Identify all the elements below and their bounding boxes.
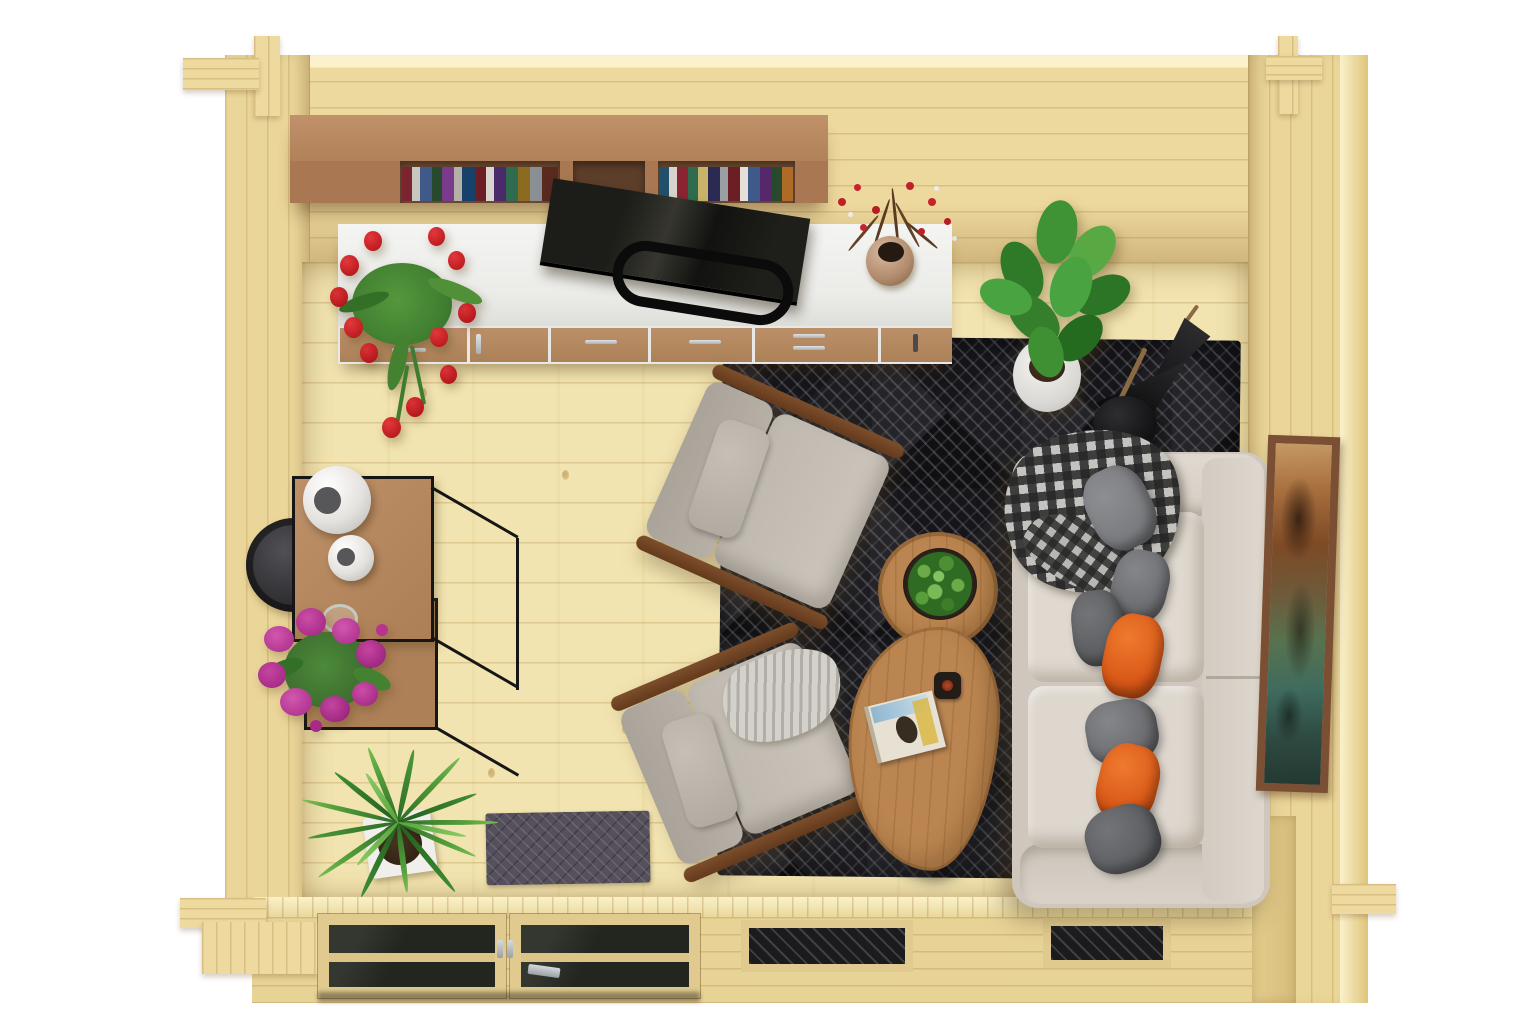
vase-opening — [314, 487, 341, 514]
corner-log-top-right-horizontal — [1266, 56, 1322, 80]
scene-canvas — [0, 0, 1536, 1025]
tulip-plant — [330, 225, 490, 440]
front-window-right — [1043, 918, 1171, 968]
candle — [934, 672, 961, 699]
vase-mouth — [878, 242, 904, 262]
blossom — [952, 236, 957, 241]
picture-frame — [1256, 435, 1340, 793]
window-interior-rug-glimpse — [749, 928, 905, 964]
cabinet-handle — [913, 334, 918, 352]
cabinet-door — [881, 328, 952, 362]
front-window-left — [741, 920, 913, 972]
purple-flower — [296, 608, 326, 636]
books-row — [660, 167, 793, 201]
tulip-stem — [410, 345, 426, 405]
berry — [854, 184, 861, 191]
blossom — [934, 186, 939, 191]
corner-log-top-left-horizontal — [183, 58, 259, 90]
drawer — [551, 328, 648, 362]
tulip-flower — [448, 251, 465, 270]
door-threshold-shadow — [318, 992, 700, 1002]
small-sphere-vase — [328, 535, 374, 581]
tulip-flower — [340, 255, 359, 276]
ficus-plant — [985, 170, 1145, 420]
right-wall-outer-edge — [1340, 55, 1368, 1003]
door-right-panel — [510, 914, 700, 998]
berry — [944, 218, 951, 225]
porch-step — [202, 922, 318, 974]
bookshelf-top-face — [290, 115, 828, 161]
purple-flower — [352, 682, 378, 706]
blossom — [848, 212, 853, 217]
window-interior-rug-glimpse — [1051, 926, 1163, 960]
plant-bowl-greenery — [908, 552, 972, 616]
candle-flame-center — [942, 680, 953, 691]
berry-vase-arrangement — [810, 170, 970, 295]
tulip-flower — [440, 365, 457, 384]
tulip-flower — [430, 327, 448, 347]
door-mid-rail — [329, 953, 495, 962]
drawer — [755, 328, 878, 362]
berry-branch — [904, 221, 938, 250]
door-handle — [507, 940, 513, 958]
shelf-unit-frame-bar — [516, 538, 519, 690]
large-sphere-vase — [303, 466, 371, 534]
corner-log-bottom-right — [1332, 884, 1396, 914]
berry — [860, 224, 867, 231]
tulip-flower — [330, 287, 348, 307]
berry — [872, 206, 880, 214]
vase-opening — [337, 548, 355, 566]
drawer — [651, 328, 752, 362]
door-left-panel — [318, 914, 506, 998]
purple-flower — [356, 640, 386, 668]
door-handle — [497, 940, 503, 958]
berry — [838, 198, 846, 206]
purple-flower — [264, 626, 294, 652]
berry — [918, 228, 925, 235]
berry — [928, 198, 936, 206]
purple-flower — [280, 688, 312, 716]
tulip-flower — [382, 417, 401, 438]
berry — [906, 182, 914, 190]
floor-knot — [562, 470, 569, 480]
tulip-flower — [360, 343, 378, 363]
door-mid-rail — [521, 953, 689, 962]
sofa-backrest — [1202, 458, 1264, 902]
doormat — [485, 811, 650, 886]
tulip-flower — [458, 303, 476, 323]
tulip-flower — [364, 231, 382, 251]
books-row — [402, 167, 558, 201]
purple-flower — [332, 618, 360, 644]
tulip-flower — [344, 317, 363, 338]
tulip-flower — [428, 227, 445, 246]
palm-plant — [280, 715, 500, 900]
purple-flower — [258, 662, 286, 688]
tulip-flower — [406, 397, 424, 417]
picture-art — [1264, 443, 1332, 785]
purple-flower-sprig — [376, 624, 388, 636]
